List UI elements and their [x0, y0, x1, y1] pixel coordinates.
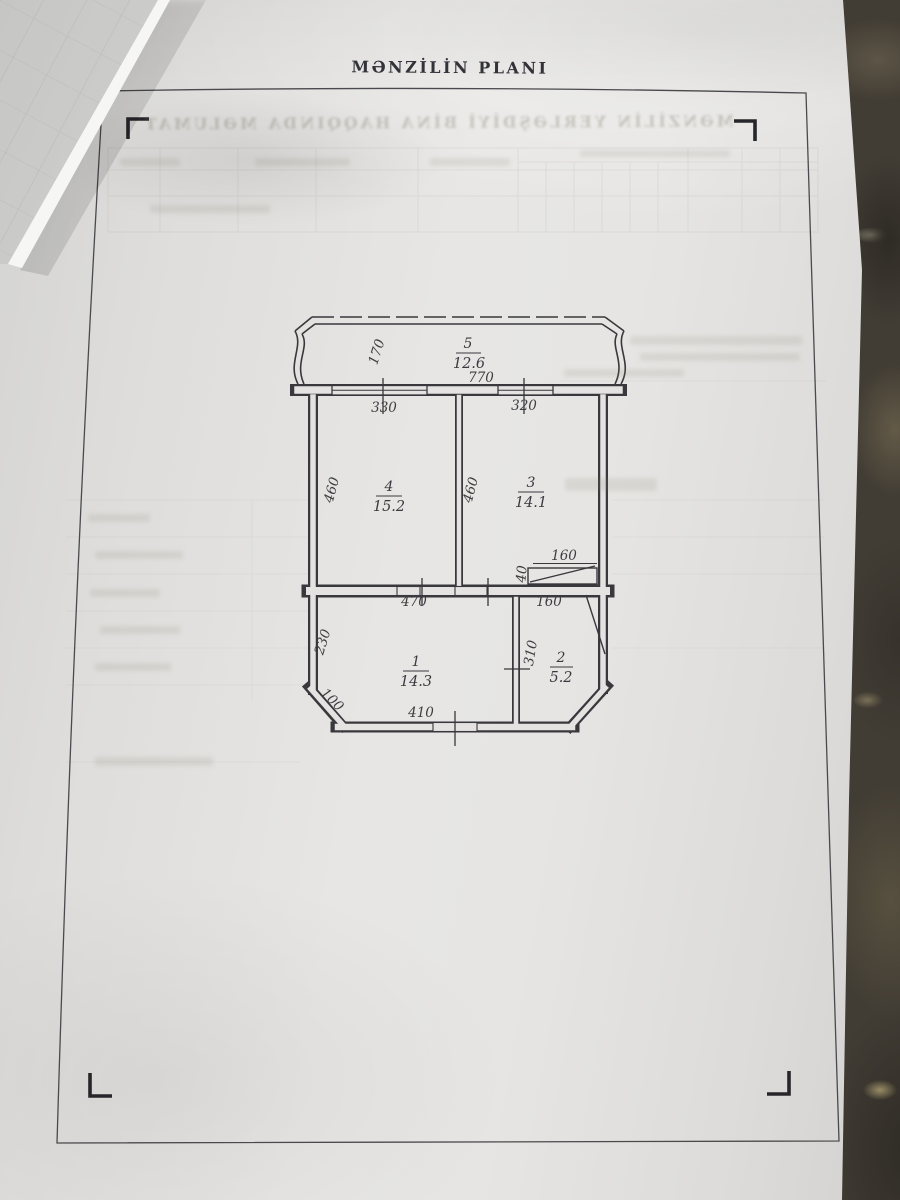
bleedthrough-smudge: [564, 369, 684, 377]
dim-room2-width: 160: [536, 594, 562, 610]
dim-balcony-width: 770: [468, 370, 494, 386]
room1-area: 14.3: [400, 674, 432, 690]
corner-bracket-marks: [90, 119, 789, 1096]
dim-room2-height: 310: [521, 639, 541, 668]
dim-room1-width: 470: [400, 594, 427, 610]
dim-window-room4: 330: [371, 400, 397, 416]
room5-area: 12.6: [453, 356, 485, 372]
bleedthrough-row-lines: [66, 381, 826, 762]
dim-niche-depth: 40: [513, 564, 531, 584]
document-frame-border: [57, 88, 839, 1143]
photo-of-floor-plan-document: 170 770 330 320 460 460 160 40 470 160 2…: [0, 0, 900, 1200]
bleedthrough-smudge: [95, 663, 171, 671]
bleedthrough-smudge: [150, 205, 270, 213]
bleedthrough-smudge: [100, 626, 180, 634]
room2-area: 5.2: [549, 670, 572, 686]
room3-area: 14.1: [515, 495, 547, 511]
room5-number: 5: [464, 336, 473, 352]
dim-room1-bottom: 410: [407, 705, 434, 721]
dim-window-room3: 320: [511, 398, 537, 414]
room4-area: 15.2: [373, 499, 405, 515]
bleedthrough-heading-mirrored: MƏNZİLİN YERLƏŞDİYİ BİNA HAQQINDA MƏLUMA…: [138, 111, 738, 133]
bleedthrough-smudge: [88, 514, 150, 522]
bleedthrough-smudge: [95, 551, 183, 559]
room4-number: 4: [384, 479, 394, 495]
bleedthrough-smudge: [630, 336, 802, 345]
bleedthrough-smudge: [640, 353, 800, 361]
floor-plan-drawing: 170 770 330 320 460 460 160 40 470 160 2…: [0, 0, 900, 1200]
corner-bracket-bottom-right: [767, 1071, 789, 1094]
dim-room3-height: 460: [460, 475, 482, 505]
bleedthrough-smudge: [255, 158, 350, 166]
room2-number: 2: [556, 650, 566, 666]
room3-number: 3: [527, 475, 536, 491]
dim-room4-height: 460: [321, 475, 343, 505]
bleedthrough-smudge: [430, 158, 510, 166]
corner-bracket-bottom-left: [90, 1073, 112, 1096]
bleedthrough-smudge: [565, 478, 657, 491]
bleedthrough-smudge: [95, 757, 213, 766]
bleedthrough-smudge: [120, 158, 180, 166]
dim-balcony-depth: 170: [365, 337, 388, 367]
room1-number: 1: [412, 654, 421, 670]
niche-shaft: [528, 564, 597, 585]
dim-niche-width: 160: [551, 548, 577, 564]
bleedthrough-smudge: [580, 150, 730, 157]
bleedthrough-smudge: [90, 589, 160, 597]
page-title: MƏNZİLİN PLANI: [330, 57, 570, 78]
dim-corner-chamfer: 100: [317, 685, 347, 715]
